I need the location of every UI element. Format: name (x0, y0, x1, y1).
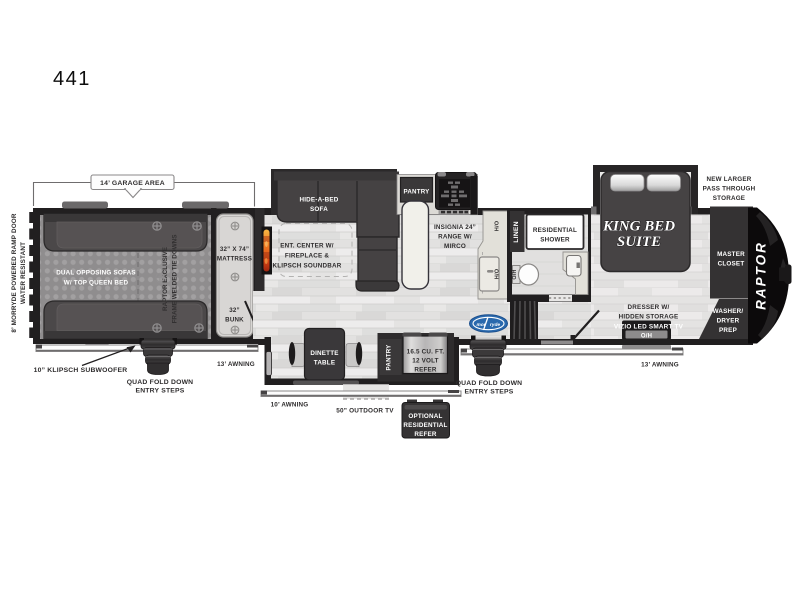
svg-text:WATER RESISTANT: WATER RESISTANT (20, 242, 27, 304)
svg-text:SOFA: SOFA (310, 206, 328, 213)
svg-text:W/ TOP QUEEN BED: W/ TOP QUEEN BED (64, 280, 129, 287)
svg-text:13’ AWNING: 13’ AWNING (217, 361, 255, 368)
svg-text:MATTRESS: MATTRESS (217, 256, 252, 263)
svg-text:RANGE W/: RANGE W/ (438, 234, 472, 241)
svg-text:RESIDENTIAL: RESIDENTIAL (533, 227, 577, 234)
svg-text:PASS THROUGH: PASS THROUGH (703, 186, 756, 193)
svg-text:TABLE: TABLE (314, 360, 336, 367)
svg-text:441: 441 (53, 68, 91, 90)
svg-text:10” KLIPSCH SUBWOOFER: 10” KLIPSCH SUBWOOFER (34, 367, 128, 374)
svg-text:ENTRY STEPS: ENTRY STEPS (464, 389, 513, 396)
svg-text:14’ GARAGE AREA: 14’ GARAGE AREA (100, 180, 165, 187)
svg-text:HIDDEN STORAGE: HIDDEN STORAGE (619, 314, 679, 321)
svg-text:STORAGE: STORAGE (713, 195, 745, 202)
svg-text:50” OUTDOOR TV: 50” OUTDOOR TV (336, 408, 394, 415)
svg-text:NEW LARGER: NEW LARGER (706, 176, 751, 183)
svg-text:DRYER: DRYER (717, 318, 740, 325)
svg-text:INSIGNIA 24”: INSIGNIA 24” (434, 224, 476, 231)
svg-text:FRAME WELDED TIE DOWNS: FRAME WELDED TIE DOWNS (172, 235, 179, 324)
svg-text:13’ AWNING: 13’ AWNING (641, 362, 679, 369)
svg-text:DRESSER W/: DRESSER W/ (628, 304, 670, 311)
svg-text:H/O: H/O (495, 268, 501, 279)
svg-text:SUITE: SUITE (617, 234, 661, 250)
svg-text:REFER: REFER (414, 431, 437, 438)
svg-text:CLOSET: CLOSET (718, 261, 745, 268)
svg-text:mor: mor (476, 322, 486, 328)
svg-text:H/O: H/O (495, 220, 501, 231)
svg-text:DUAL OPPOSING SOFAS: DUAL OPPOSING SOFAS (56, 270, 136, 277)
svg-text:16.5 CU. FT.: 16.5 CU. FT. (407, 349, 445, 356)
svg-text:PREP: PREP (719, 327, 737, 334)
svg-text:10’ AWNING: 10’ AWNING (271, 402, 309, 409)
svg-text:MASTER: MASTER (717, 251, 745, 258)
svg-text:ryde: ryde (490, 322, 500, 328)
svg-text:32” X 74”: 32” X 74” (220, 246, 249, 253)
svg-text:8’ MORRYDE POWERED RAMP DOOR: 8’ MORRYDE POWERED RAMP DOOR (11, 213, 18, 333)
svg-text:MIRCO: MIRCO (444, 243, 466, 250)
svg-text:BUNK: BUNK (225, 317, 244, 324)
svg-text:RAPTOR: RAPTOR (754, 241, 769, 310)
svg-text:PANTRY: PANTRY (386, 344, 393, 371)
svg-text:12 VOLT: 12 VOLT (412, 358, 438, 365)
svg-text:32”: 32” (229, 307, 240, 314)
svg-text:LINEN: LINEN (513, 221, 520, 242)
svg-text:VIZIO LED SMART TV: VIZIO LED SMART TV (614, 324, 684, 331)
svg-text:KING BED: KING BED (602, 219, 675, 235)
svg-text:HIDE-A-BED: HIDE-A-BED (299, 197, 338, 204)
svg-text:QUAD FOLD DOWN: QUAD FOLD DOWN (456, 380, 523, 387)
svg-text:ENT. CENTER W/: ENT. CENTER W/ (280, 243, 334, 250)
svg-text:REFER: REFER (414, 367, 437, 374)
svg-text:RESIDENTIAL: RESIDENTIAL (403, 422, 447, 429)
svg-text:SHOWER: SHOWER (540, 237, 570, 244)
svg-text:O/H: O/H (512, 269, 518, 279)
svg-text:ENTRY STEPS: ENTRY STEPS (135, 388, 184, 395)
svg-text:KLIPSCH SOUNDBAR: KLIPSCH SOUNDBAR (273, 263, 342, 270)
svg-text:DINETTE: DINETTE (310, 350, 338, 357)
svg-text:QUAD FOLD DOWN: QUAD FOLD DOWN (127, 379, 194, 386)
svg-text:FIREPLACE &: FIREPLACE & (285, 253, 329, 260)
svg-text:O/H: O/H (641, 334, 652, 340)
svg-text:OPTIONAL: OPTIONAL (408, 413, 442, 420)
svg-text:WASHER/: WASHER/ (713, 308, 744, 315)
svg-text:PANTRY: PANTRY (404, 189, 431, 196)
svg-text:RAPTOR EXCLUSIVE: RAPTOR EXCLUSIVE (162, 247, 169, 311)
